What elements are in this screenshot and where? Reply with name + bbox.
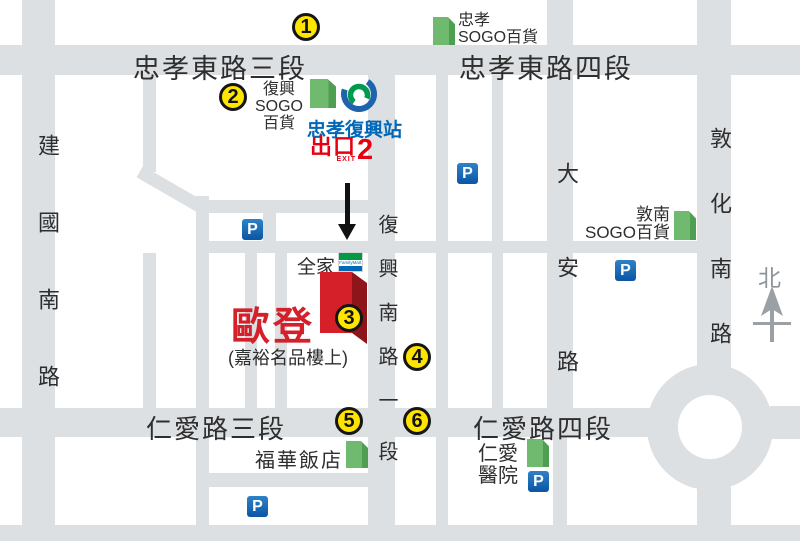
marker-4: 4 [403,343,431,371]
familymart-logo-green-stripe [339,253,362,260]
exit-label: 出口 [310,137,356,157]
parking-icon-3: P [615,260,636,281]
exit-number: 2 [357,137,373,163]
road-lane-e [143,253,156,408]
parking-icon-4: P [247,496,268,517]
marker-5: 5 [335,407,363,435]
road-dunhua-lower [697,487,731,541]
road-lane-f [436,70,448,528]
building-icon-renai-hospital [527,439,549,467]
familymart-logo-wordmark: FamilyMart [339,260,362,266]
exit-label-block: 出口 EXIT [310,137,356,163]
label-daan: 大安路 [550,162,582,444]
label-renai-hospital: 仁愛 醫院 [478,443,518,487]
label-zhongxiao-east-4: 忠孝東路四段 [459,47,633,86]
parking-icon-1: P [242,219,263,240]
label-fuxing-sogo-line1: 復興 [250,81,308,98]
label-dunnan-sogo: 敦南 SOGO百貨 [577,206,670,242]
label-zhongxiao-sogo-line1: 忠孝 [458,12,538,29]
label-ouden-note: (嘉裕名品樓上) [228,344,348,370]
parking-icon-2: P [457,163,478,184]
road-bottom [0,525,800,541]
building-icon-dunnan-sogo [674,211,696,240]
label-dunnan-sogo-line1: 敦南 [577,206,670,224]
marker-3: 3 [335,304,363,332]
building-icon-howard-hotel [346,441,368,468]
compass-north-icon [752,286,794,344]
label-fuxing-sogo-line3: 百貨 [250,115,308,132]
lane-south-howard [198,473,388,487]
road-lane-a [196,196,209,541]
parking-icon-5: P [528,471,549,492]
label-renai-hospital-line2: 醫院 [478,465,518,487]
label-jianguo-south: 建國南路 [31,134,63,442]
label-fuxing-south-main: 復興南路一 [372,214,401,434]
building-icon-fuxing-sogo [310,79,336,108]
marker-1: 1 [292,13,320,41]
label-dunnan-sogo-line2: SOGO百貨 [577,224,670,242]
label-zhongxiao-sogo: 忠孝 SOGO百貨 [458,12,538,46]
road-daan-lower [553,437,567,541]
roundabout-center [678,395,742,459]
mrt-logo-icon [338,75,380,113]
label-howard-hotel: 福華飯店 [255,444,343,473]
road-connector-b [263,200,276,253]
label-zhongxiao-sogo-line2: SOGO百貨 [458,29,538,46]
building-icon-zhongxiao-sogo [433,17,455,45]
exit-arrow-head-icon [338,224,356,240]
marker-2: 2 [219,83,247,111]
exit-2-sign: 出口 EXIT 2 [310,137,373,163]
lane-north-of-ouden [196,200,368,213]
label-fuxing-sogo-line2: SOGO [250,98,308,115]
road-zhongxiao-east [0,45,800,75]
street-map: 忠孝東路三段 忠孝東路四段 仁愛路三段 仁愛路四段 建國南路 敦化南路 大安路 … [0,0,800,541]
label-fuxing-sogo: 復興 SOGO 百貨 [250,81,308,132]
label-renai-3: 仁愛路三段 [146,409,286,446]
road-lane-g [492,70,503,408]
label-dunhua-south: 敦化南路 [703,127,735,387]
familymart-logo-text: FamilyMart [339,261,361,266]
road-bent-diagonal [137,166,204,212]
label-fuxing-south-tail: 段 [372,441,401,461]
marker-6: 6 [403,407,431,435]
label-renai-hospital-line1: 仁愛 [478,443,518,465]
exit-arrow-icon [345,183,350,226]
road-renai-east-stub [770,406,800,439]
